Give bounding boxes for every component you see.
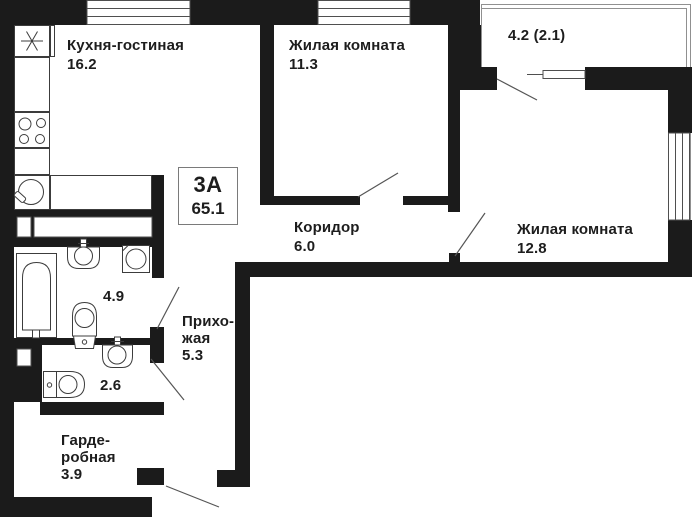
balcony-window-icon <box>527 71 585 79</box>
cabinet-cell <box>15 58 50 112</box>
room-name: Кухня-гостиная <box>67 36 184 55</box>
wall-balcony-step <box>455 25 481 90</box>
stove-box <box>15 113 50 148</box>
wall-entry-jamb-right <box>217 470 235 487</box>
wall-door-jamb-room2 <box>449 253 460 262</box>
room-name: Коридор <box>294 218 360 237</box>
wall-entry-jamb-left <box>137 468 164 485</box>
apartment-badge: 3А 65.1 <box>178 167 238 225</box>
shaft-box-icon <box>17 349 31 366</box>
room-area: 12.8 <box>517 239 633 258</box>
door-swing-icon-entry <box>166 486 219 507</box>
door-swing-icon-bathroom <box>157 287 179 329</box>
apartment-type: 3А <box>179 172 237 198</box>
room-name: Жилая комната <box>517 220 633 239</box>
room-label-wc: 2.6 <box>100 376 121 395</box>
doors <box>151 79 537 507</box>
shaft-box-icon <box>17 217 31 237</box>
apartment-total-area: 65.1 <box>179 198 237 219</box>
kitchen-window-icon <box>87 1 190 25</box>
washing-machine-icon <box>123 246 150 273</box>
wall-bath-wc-jamb <box>150 327 164 363</box>
room-name: робная <box>61 449 116 466</box>
wall-south-band <box>235 262 668 277</box>
wall-shaft-stub <box>12 392 40 402</box>
wall-passage-bar <box>152 175 164 278</box>
wall-right-upper <box>668 90 692 133</box>
room2-window-icon <box>669 133 690 220</box>
room-area: 4.2 (2.1) <box>508 26 565 45</box>
room-area: 3.9 <box>61 466 116 483</box>
wall-hallway-right <box>235 277 250 487</box>
cabinet-cell <box>15 149 50 175</box>
room-name: жая <box>182 330 234 347</box>
counter <box>51 176 152 210</box>
toilet-icon <box>44 372 85 398</box>
door-swing-icon-wc <box>151 359 184 400</box>
room-area: 16.2 <box>67 55 184 74</box>
door-swing-icon-room2 <box>455 213 485 256</box>
room-area: 2.6 <box>100 376 121 395</box>
room-name: Прихо- <box>182 313 234 330</box>
room-label-bathroom: 4.9 <box>103 287 124 306</box>
room-area: 6.0 <box>294 237 360 256</box>
shaft-box-icon <box>34 217 152 237</box>
room-name: Гарде- <box>61 432 116 449</box>
wall-bottom-left <box>0 497 152 517</box>
room1-window-icon <box>318 1 410 25</box>
room-label-living-1: Жилая комната 11.3 <box>289 36 405 74</box>
room-label-corridor: Коридор 6.0 <box>294 218 360 256</box>
door-swing-icon-balcony <box>497 79 537 100</box>
door-swing-icon-room1 <box>358 173 398 197</box>
wall-left <box>0 25 14 517</box>
wall-corridor-left <box>260 196 360 205</box>
room-label-living-2: Жилая комната 12.8 <box>517 220 633 258</box>
wall-wc-wardrobe <box>40 402 164 415</box>
room-area: 11.3 <box>289 55 405 74</box>
floor-plan: Кухня-гостиная 16.2 Жилая комната 11.3 4… <box>0 0 694 519</box>
wall-kitchen-room1 <box>260 25 274 205</box>
bathroom-fixtures <box>17 239 150 349</box>
room-name: Жилая комната <box>289 36 405 55</box>
wall-balcony-band <box>585 67 692 90</box>
room-area: 5.3 <box>182 347 234 364</box>
toilet-icon <box>73 303 97 349</box>
room-label-wardrobe: Гарде- робная 3.9 <box>61 432 116 483</box>
bathtub-icon <box>17 254 57 339</box>
wall-right-lower <box>668 220 692 277</box>
room-label-balcony: 4.2 (2.1) <box>508 26 565 45</box>
room-label-hallway: Прихо- жая 5.3 <box>182 313 234 364</box>
wall-balcony-door-jamb <box>481 67 497 90</box>
room-label-kitchen-living: Кухня-гостиная 16.2 <box>67 36 184 74</box>
room-area: 4.9 <box>103 287 124 306</box>
vent-box-strip <box>51 26 55 57</box>
